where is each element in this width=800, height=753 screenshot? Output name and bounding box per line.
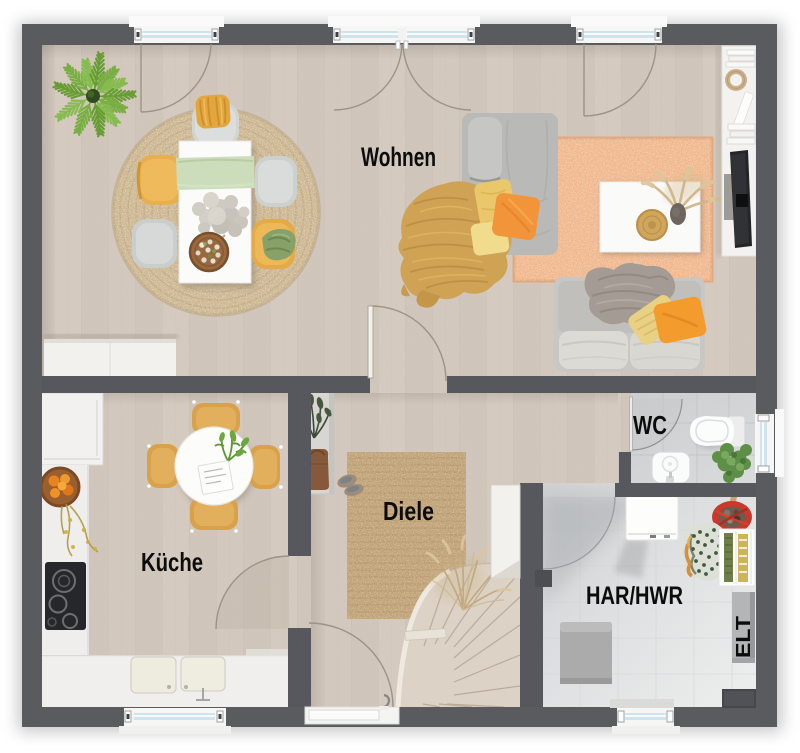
svg-text:Küche: Küche [141, 547, 203, 577]
svg-text:Wohnen: Wohnen [361, 142, 436, 172]
svg-text:WC: WC [633, 410, 667, 440]
svg-text:Diele: Diele [383, 496, 434, 526]
svg-text:HAR/HWR: HAR/HWR [586, 582, 683, 610]
svg-text:ELT: ELT [733, 616, 755, 658]
